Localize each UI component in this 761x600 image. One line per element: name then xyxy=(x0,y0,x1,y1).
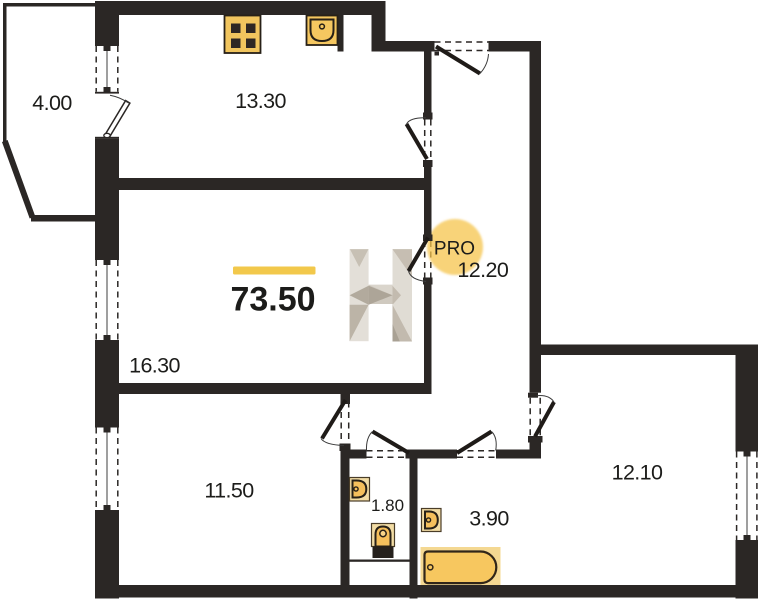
svg-text:73.50: 73.50 xyxy=(230,281,315,319)
svg-text:13.30: 13.30 xyxy=(235,89,286,113)
svg-text:3.90: 3.90 xyxy=(469,507,509,531)
svg-text:12.10: 12.10 xyxy=(612,461,663,485)
svg-text:16.30: 16.30 xyxy=(129,354,180,378)
svg-text:12.20: 12.20 xyxy=(457,258,508,282)
svg-text:4.00: 4.00 xyxy=(32,91,72,115)
svg-text:11.50: 11.50 xyxy=(204,479,254,503)
svg-text:PRO: PRO xyxy=(434,239,475,260)
svg-text:1.80: 1.80 xyxy=(371,496,404,515)
